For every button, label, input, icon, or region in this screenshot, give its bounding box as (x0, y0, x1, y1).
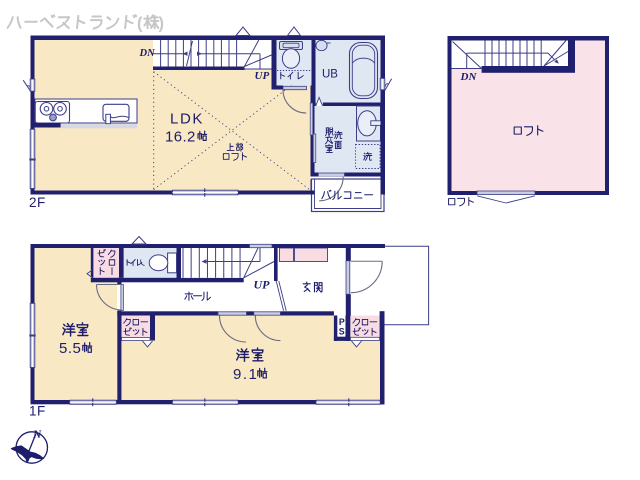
svg-text:UP: UP (254, 278, 271, 292)
svg-text:DN: DN (139, 48, 156, 59)
svg-text:9.1: 9.1 (233, 366, 258, 383)
svg-text:LDK: LDK (170, 111, 204, 128)
svg-text:2F: 2F (29, 195, 46, 210)
svg-text:16.2: 16.2 (165, 129, 196, 146)
svg-text:): ) (159, 15, 165, 33)
svg-text:5.5: 5.5 (59, 340, 81, 357)
svg-text:UP: UP (255, 70, 270, 82)
svg-text:UB: UB (322, 69, 338, 81)
svg-text:DN: DN (460, 71, 478, 83)
svg-text:(: ( (137, 15, 143, 33)
svg-text:1F: 1F (29, 404, 46, 419)
svg-text:S: S (339, 327, 345, 337)
